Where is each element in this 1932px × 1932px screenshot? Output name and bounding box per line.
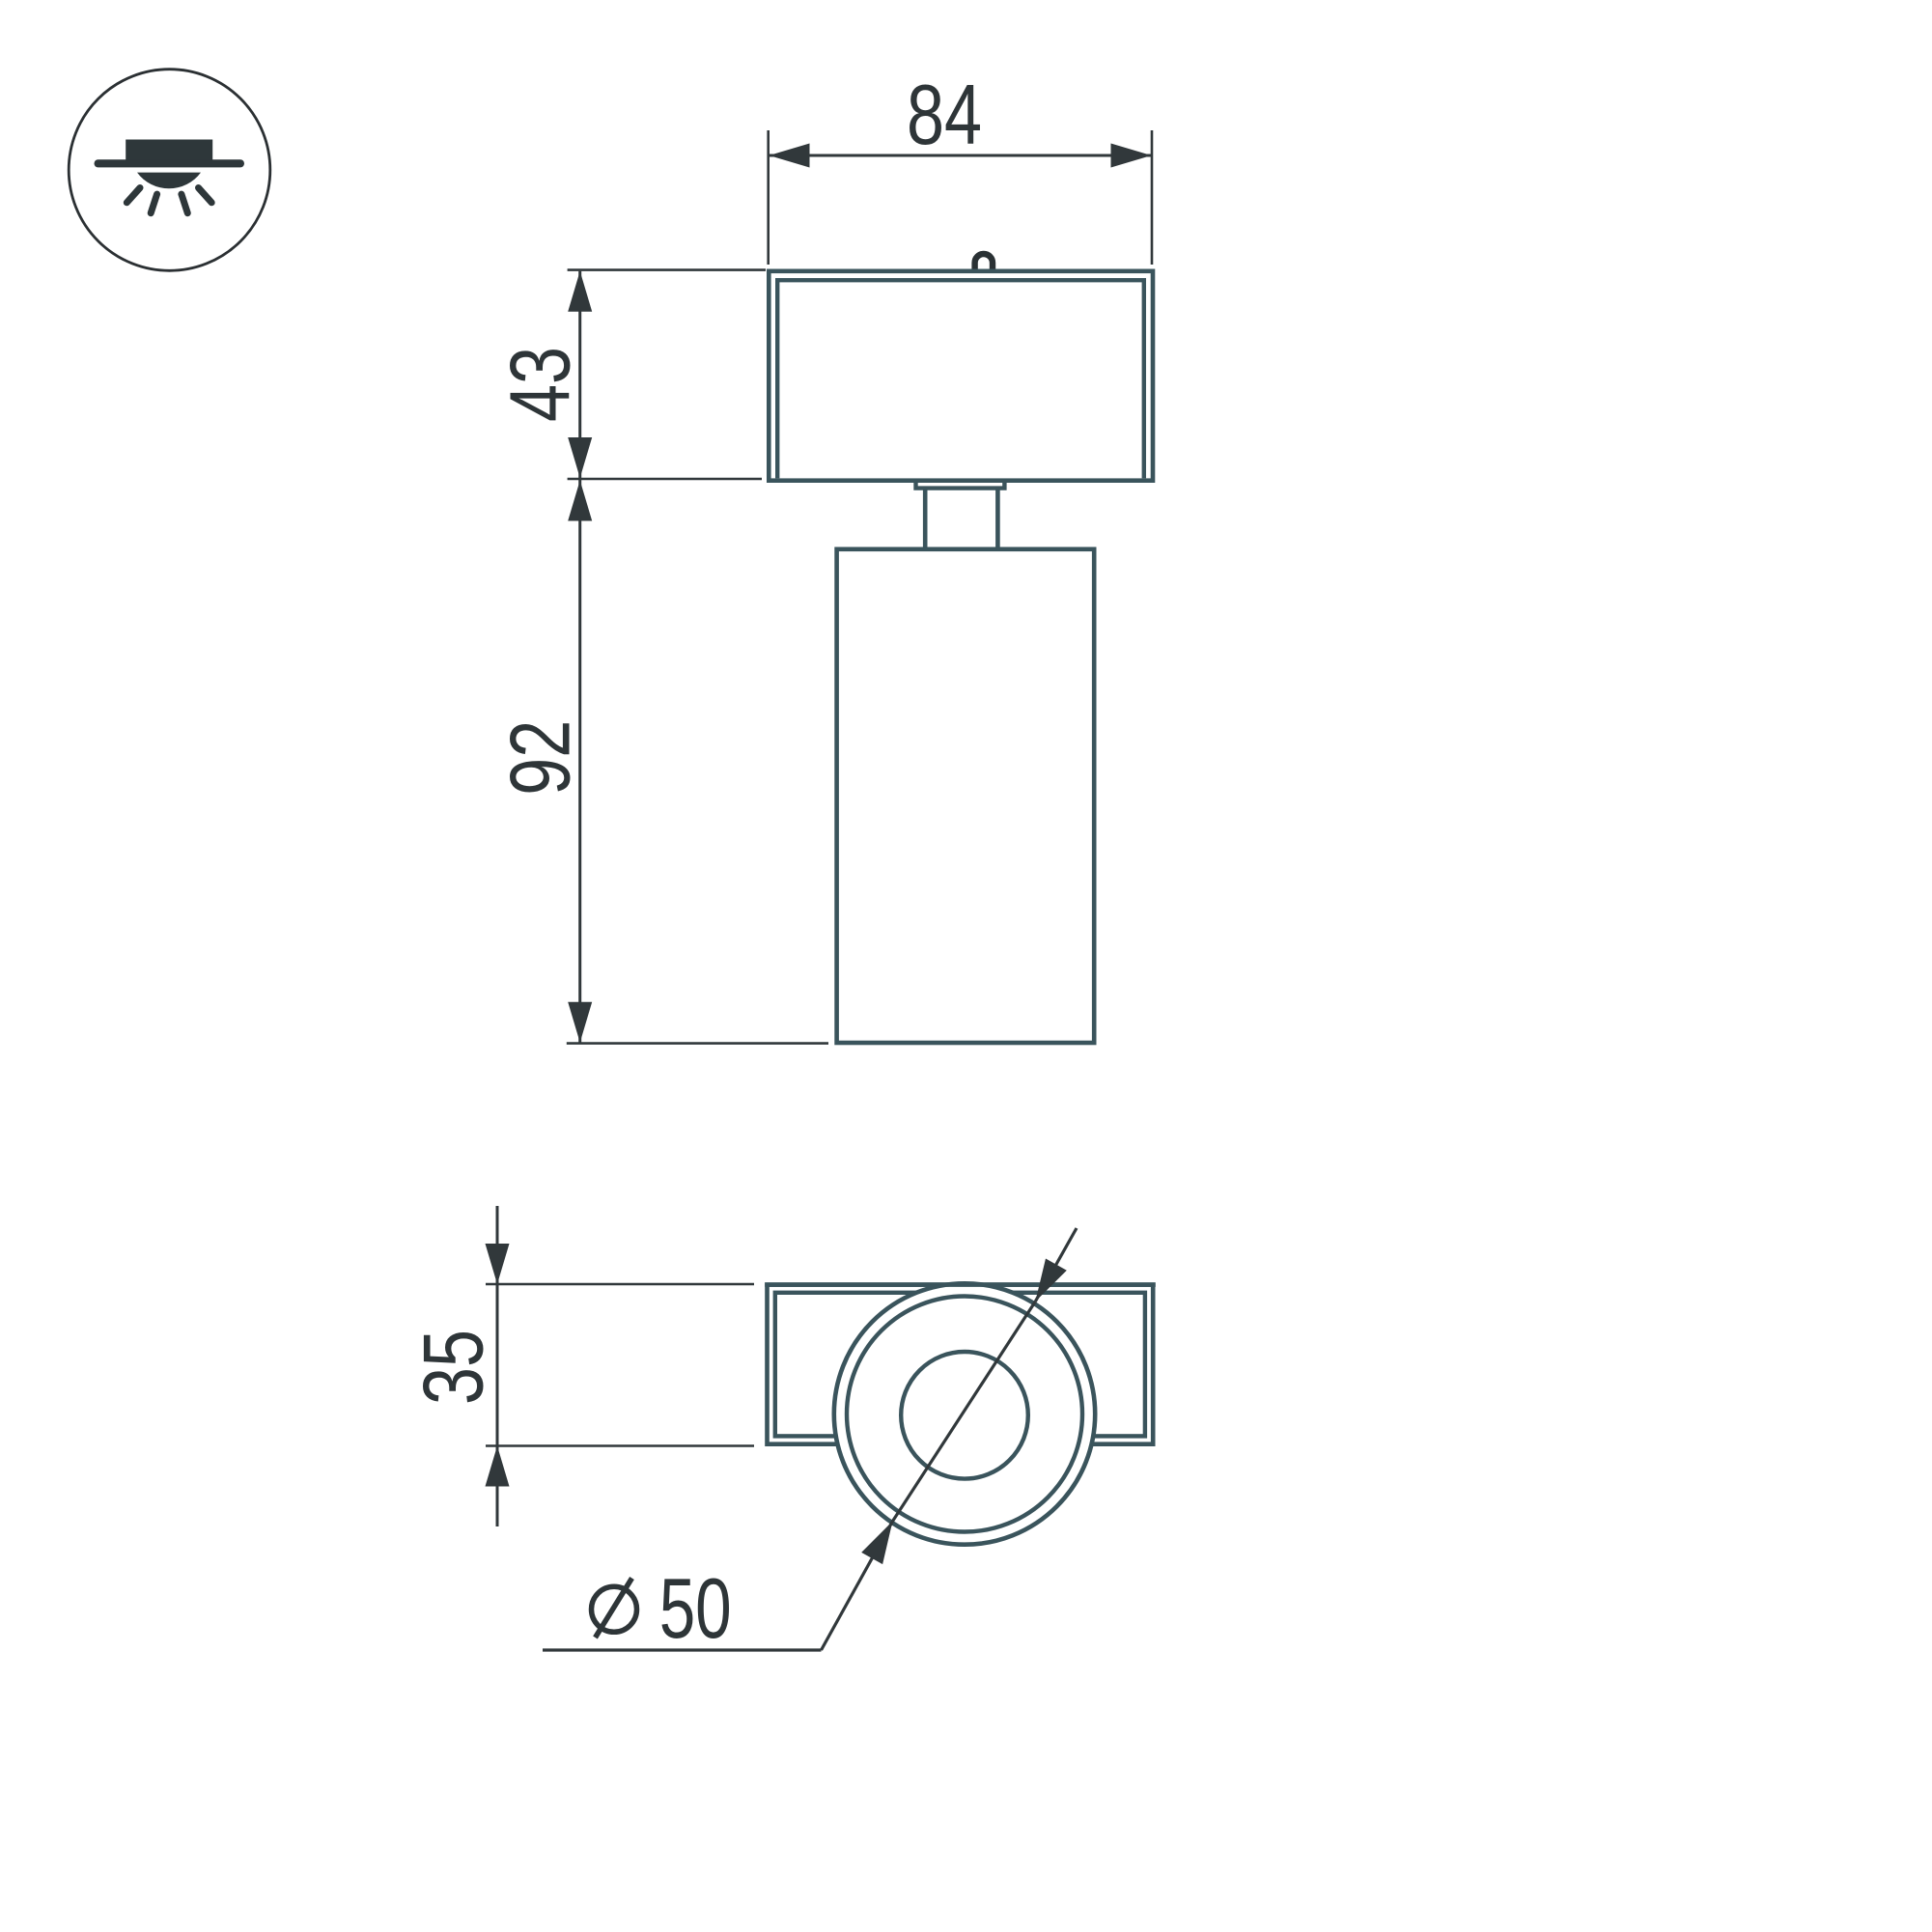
- svg-text:92: 92: [492, 720, 588, 796]
- svg-text:43: 43: [492, 347, 588, 422]
- svg-text:35: 35: [406, 1330, 501, 1405]
- svg-text:84: 84: [907, 67, 982, 162]
- svg-text:50: 50: [659, 1560, 732, 1656]
